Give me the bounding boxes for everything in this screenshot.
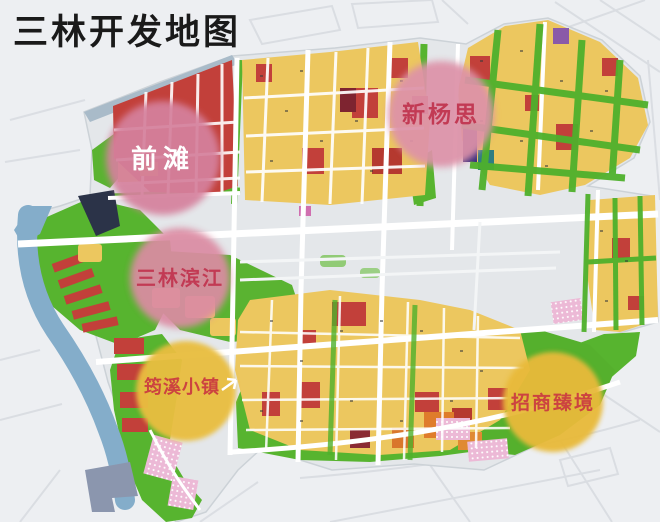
district-label-xinyangsi: 新杨思 (402, 101, 480, 127)
district-label-sanlin-binjiang: 三林滨江 (136, 266, 224, 290)
district-marker-junxi-xiaozhen[interactable]: 筠溪小镇 (136, 341, 236, 441)
district-label-junxi-xiaozhen: 筠溪小镇 (144, 376, 220, 397)
map-canvas: 前滩 新杨思 三林滨江 筠溪小镇 招商臻境 三林开发地图 (0, 0, 660, 522)
sanlin-development-map: 前滩 新杨思 三林滨江 筠溪小镇 招商臻境 三林开发地图 (0, 0, 660, 522)
district-marker-qiantan[interactable]: 前滩 (106, 101, 220, 215)
district-marker-zhaoshang-zhenjing[interactable]: 招商臻境 (503, 352, 603, 452)
district-marker-sanlin-binjiang[interactable]: 三林滨江 (130, 228, 230, 328)
page-title: 三林开发地图 (13, 13, 241, 52)
district-label-zhaoshang-zhenjing: 招商臻境 (511, 391, 595, 414)
district-label-qiantan: 前滩 (131, 144, 195, 174)
district-marker-xinyangsi[interactable]: 新杨思 (388, 61, 494, 167)
